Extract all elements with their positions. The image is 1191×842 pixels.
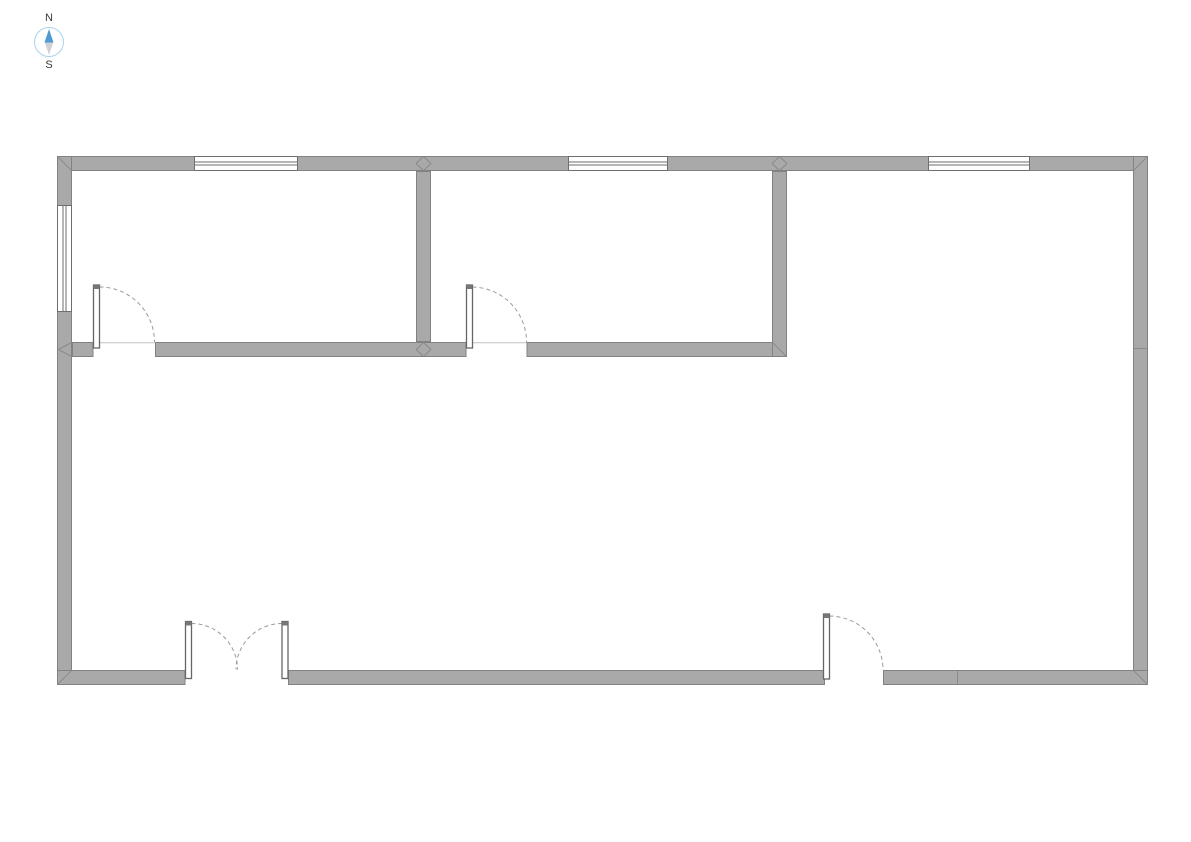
door-room-2-leaf (467, 285, 473, 348)
entrance-door-left-leaf-swing-arc (192, 624, 238, 670)
interior-wall-right (527, 343, 787, 357)
south-wall-left (58, 671, 186, 685)
door-southeast-swing-arc (830, 616, 884, 670)
entrance-door-left-leaf-leaf (186, 622, 192, 679)
entrance-door-left-leaf-hinge-cap (186, 622, 192, 626)
window-west (58, 206, 72, 312)
south-wall-right (884, 671, 1148, 685)
floor-plan-canvas: N S (0, 0, 1191, 842)
door-southeast-leaf (824, 614, 830, 679)
window-north-3 (929, 157, 1030, 171)
entrance-door-right-leaf-leaf (282, 622, 288, 679)
door-room-2-hinge-cap (467, 285, 473, 289)
entrance-door-right-leaf-swing-arc (236, 624, 282, 670)
door-room-2-swing-arc (473, 287, 527, 342)
door-room-1-leaf (94, 285, 100, 348)
window-north-2 (569, 157, 668, 171)
south-wall-middle (289, 671, 825, 685)
entrance-door-right-leaf-hinge-cap (282, 622, 288, 626)
interior-wall-left (73, 343, 94, 357)
door-room-1-swing-arc (100, 287, 155, 342)
partition-wall-b (773, 172, 787, 357)
window-north-1 (195, 157, 298, 171)
door-southeast-hinge-cap (824, 614, 830, 618)
interior-wall-center (156, 343, 467, 357)
door-room-1-hinge-cap (94, 285, 100, 289)
east-wall (1134, 157, 1148, 685)
partition-wall-a (417, 172, 431, 342)
floorplan-drawing (0, 0, 1191, 842)
